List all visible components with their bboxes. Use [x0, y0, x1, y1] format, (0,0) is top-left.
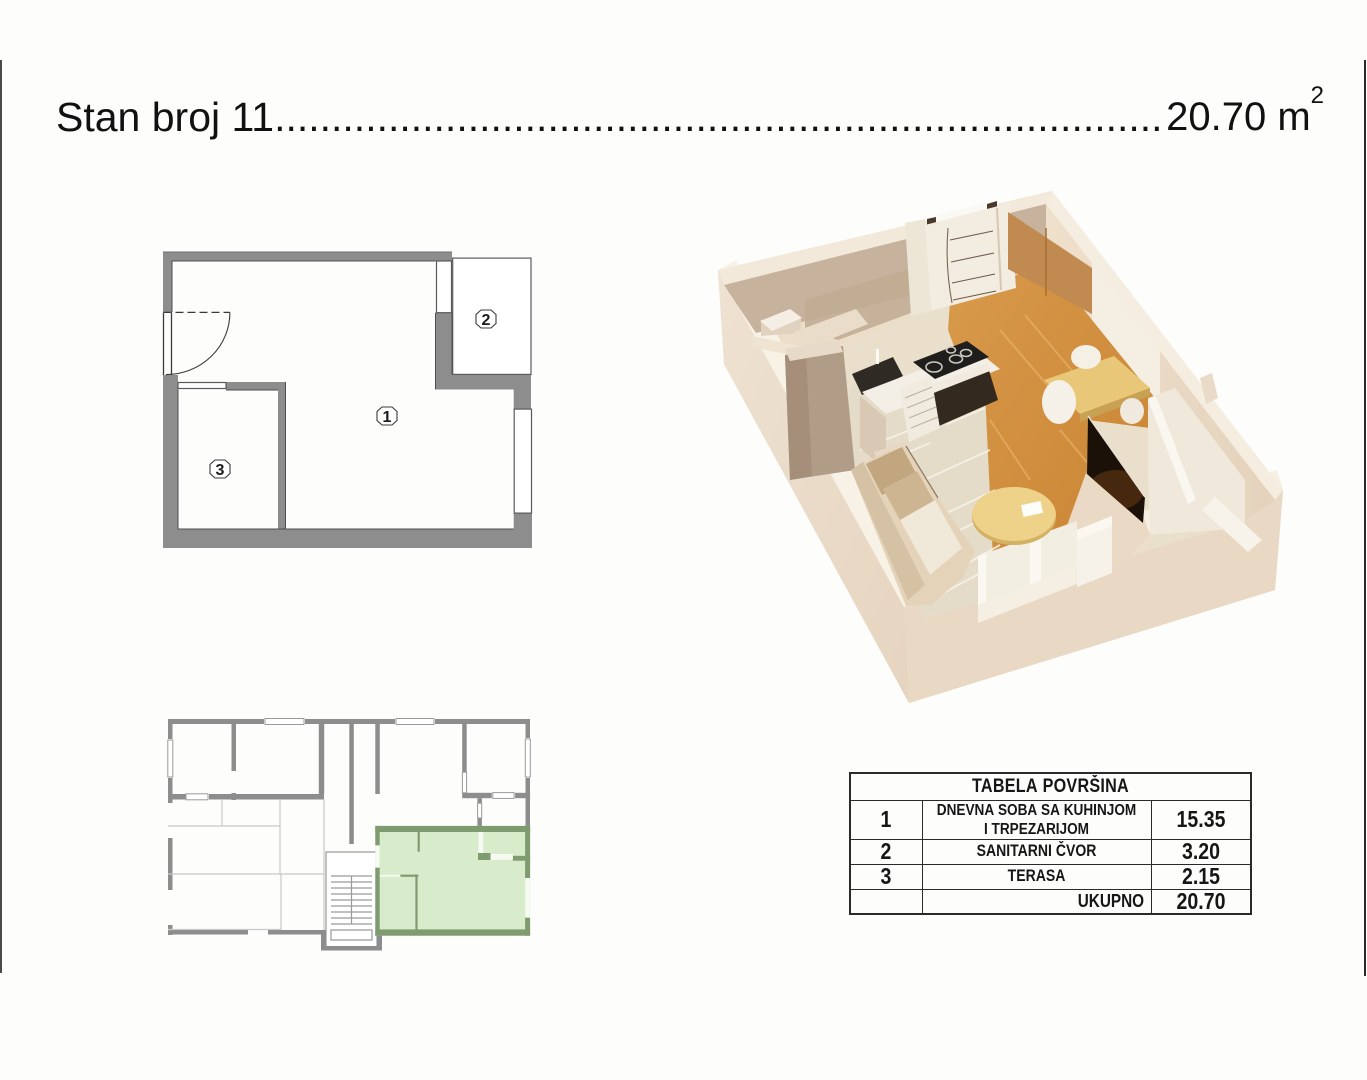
svg-text:3: 3: [216, 462, 225, 479]
svg-text:2: 2: [482, 312, 491, 329]
svg-text:1: 1: [383, 409, 392, 426]
